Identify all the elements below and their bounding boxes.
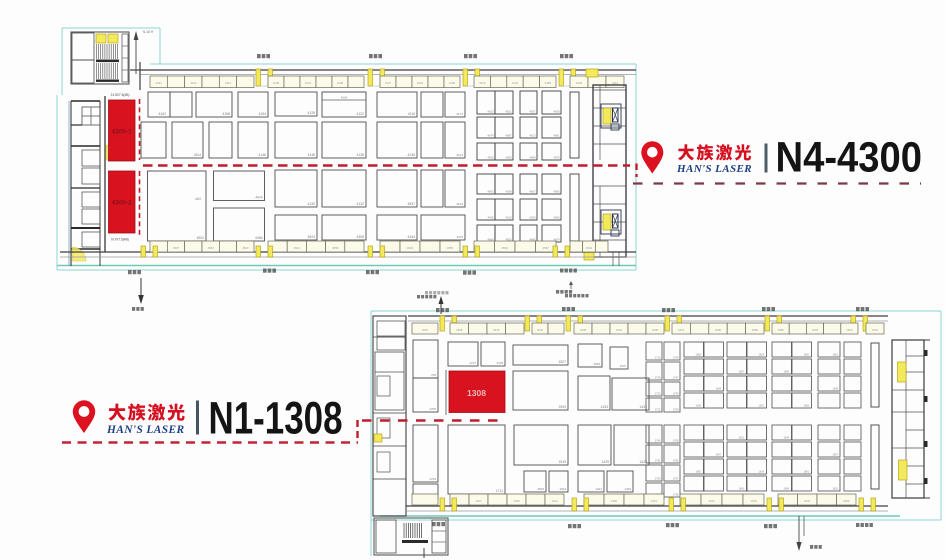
svg-text:4543: 4543 (586, 246, 593, 250)
svg-text:4191: 4191 (156, 81, 163, 85)
svg-text:1739: 1739 (673, 392, 679, 396)
svg-text:4121: 4121 (512, 81, 519, 85)
svg-text:4693: 4693 (506, 156, 512, 160)
svg-text:4521: 4521 (294, 246, 301, 250)
svg-text:1858: 1858 (803, 405, 809, 408)
svg-text:4514: 4514 (194, 153, 201, 157)
svg-text:4474: 4474 (255, 196, 262, 200)
svg-text:21.5X7.5(4B): 21.5X7.5(4B) (111, 93, 130, 97)
svg-text:1841: 1841 (738, 488, 744, 491)
svg-text:1838: 1838 (832, 388, 838, 391)
svg-text:4124: 4124 (190, 81, 197, 85)
svg-text:1433: 1433 (600, 405, 608, 409)
svg-text:1745: 1745 (655, 439, 661, 443)
svg-text:4123: 4123 (417, 81, 424, 85)
svg-text:4300-1: 4300-1 (112, 129, 132, 136)
svg-text:4555: 4555 (447, 246, 454, 250)
svg-text:4196: 4196 (449, 81, 456, 85)
svg-text:1757: 1757 (673, 477, 679, 481)
svg-text:1344: 1344 (708, 499, 715, 503)
svg-text:1382: 1382 (843, 499, 850, 503)
svg-text:1887: 1887 (738, 371, 744, 374)
svg-text:4639: 4639 (554, 110, 560, 114)
svg-text:4635: 4635 (488, 156, 494, 160)
svg-text:1527: 1527 (558, 360, 566, 364)
svg-text:1421: 1421 (595, 487, 602, 491)
svg-text:1539: 1539 (593, 362, 600, 366)
svg-text:N1-1308: N1-1308 (209, 392, 343, 443)
svg-text:4537: 4537 (173, 246, 180, 250)
svg-text:1758: 1758 (673, 408, 679, 412)
svg-text:1736: 1736 (673, 493, 679, 497)
svg-text:4138: 4138 (356, 153, 364, 157)
svg-text:1704: 1704 (429, 477, 436, 481)
svg-text:1690: 1690 (715, 328, 722, 332)
svg-text:4537: 4537 (407, 202, 415, 206)
svg-text:4502: 4502 (196, 236, 204, 240)
svg-text:4124: 4124 (341, 96, 348, 100)
svg-text:1519: 1519 (558, 460, 566, 464)
svg-text:4699: 4699 (530, 156, 536, 160)
svg-text:4638: 4638 (506, 190, 512, 194)
svg-text:1317: 1317 (475, 499, 482, 503)
svg-text:1618: 1618 (872, 328, 879, 332)
svg-text:4164: 4164 (576, 81, 583, 85)
svg-text:4434: 4434 (407, 235, 415, 239)
svg-text:4524: 4524 (307, 235, 315, 239)
svg-text:44G: 44G (195, 197, 202, 201)
svg-text:1625: 1625 (537, 328, 544, 332)
svg-text:1711: 1711 (496, 489, 503, 493)
svg-text:1725: 1725 (496, 361, 503, 365)
svg-text:4456: 4456 (255, 236, 263, 240)
svg-text:1503: 1503 (558, 405, 566, 409)
svg-text:4136: 4136 (407, 153, 415, 157)
svg-text:4158: 4158 (222, 112, 230, 116)
svg-text:1318: 1318 (750, 499, 757, 503)
svg-text:4522: 4522 (407, 246, 414, 250)
svg-text:4645: 4645 (488, 216, 494, 220)
svg-text:4663: 4663 (488, 190, 494, 194)
svg-text:1339: 1339 (513, 499, 520, 503)
svg-text:1575: 1575 (620, 364, 627, 368)
svg-text:1897: 1897 (715, 454, 721, 457)
svg-text:4674: 4674 (488, 134, 494, 138)
svg-text:1898: 1898 (783, 488, 789, 491)
svg-text:1425: 1425 (601, 460, 609, 464)
svg-text:4681: 4681 (554, 134, 560, 138)
svg-text:HAN'S LASER: HAN'S LASER (676, 163, 752, 175)
svg-text:1739: 1739 (655, 376, 661, 380)
svg-text:1689: 1689 (752, 328, 759, 332)
svg-text:4148: 4148 (307, 153, 315, 157)
svg-text:1513: 1513 (559, 487, 566, 491)
svg-text:1892: 1892 (695, 471, 701, 474)
svg-text:1656: 1656 (777, 328, 784, 332)
svg-text:4613: 4613 (488, 110, 494, 114)
svg-text:4685: 4685 (554, 190, 560, 194)
svg-text:4667: 4667 (530, 190, 536, 194)
svg-text:1869: 1869 (783, 371, 789, 374)
svg-text:1891: 1891 (803, 471, 809, 474)
svg-text:4162: 4162 (158, 112, 166, 116)
svg-text:1419: 1419 (624, 487, 631, 491)
svg-text:4179: 4179 (479, 81, 486, 85)
svg-text:1680: 1680 (652, 328, 659, 332)
svg-text:1891: 1891 (758, 405, 764, 408)
svg-text:4558: 4558 (332, 246, 339, 250)
svg-text:1756: 1756 (673, 459, 679, 463)
svg-text:1678: 1678 (493, 328, 500, 332)
svg-text:1830: 1830 (803, 354, 809, 357)
svg-text:1819: 1819 (758, 354, 764, 357)
svg-text:1668: 1668 (456, 328, 463, 332)
svg-text:4621: 4621 (506, 110, 512, 114)
svg-text:1791: 1791 (655, 459, 661, 463)
svg-text:1722: 1722 (655, 408, 661, 412)
svg-text:N-18 H': N-18 H' (143, 30, 154, 34)
svg-text:1620: 1620 (616, 328, 623, 332)
svg-text:4128: 4128 (307, 111, 315, 115)
svg-text:4143: 4143 (456, 202, 463, 206)
svg-text:4177: 4177 (456, 112, 463, 116)
svg-text:4687: 4687 (506, 134, 512, 138)
svg-text:1658: 1658 (580, 328, 587, 332)
svg-text:4699: 4699 (554, 216, 560, 220)
svg-text:1720: 1720 (655, 392, 661, 396)
svg-text:706: 706 (431, 373, 436, 377)
svg-text:1747: 1747 (673, 376, 679, 380)
svg-text:4587: 4587 (543, 246, 550, 250)
svg-text:4613: 4613 (530, 134, 536, 138)
svg-text:1881: 1881 (832, 354, 838, 357)
svg-text:1308: 1308 (467, 388, 486, 398)
svg-text:1851: 1851 (832, 488, 838, 491)
svg-text:N.7X7.5(4B): N.7X7.5(4B) (111, 238, 129, 242)
svg-text:4475: 4475 (456, 235, 463, 239)
svg-text:1844: 1844 (783, 437, 789, 440)
svg-text:4141: 4141 (305, 81, 312, 85)
svg-text:4523: 4523 (242, 246, 249, 250)
svg-text:1634: 1634 (846, 328, 853, 332)
svg-text:4553: 4553 (208, 246, 215, 250)
svg-text:1727: 1727 (469, 361, 476, 365)
svg-text:1899: 1899 (695, 405, 701, 408)
svg-text:4113: 4113 (225, 81, 231, 85)
svg-text:1768: 1768 (673, 439, 679, 443)
svg-text:4127: 4127 (385, 81, 392, 85)
svg-text:4554: 4554 (502, 246, 509, 250)
svg-text:4145: 4145 (273, 81, 280, 85)
svg-text:1314: 1314 (551, 499, 558, 503)
svg-text:1337: 1337 (804, 499, 811, 503)
svg-text:1715: 1715 (655, 356, 661, 360)
svg-text:1878: 1878 (758, 471, 764, 474)
svg-text:4679: 4679 (554, 156, 560, 160)
svg-text:1794: 1794 (673, 356, 679, 360)
svg-text:4130: 4130 (307, 202, 315, 206)
svg-text:4122: 4122 (356, 112, 364, 116)
svg-text:4154: 4154 (258, 112, 266, 116)
svg-text:N4-4300: N4-4300 (776, 133, 923, 181)
svg-text:HAN'S LASER: HAN'S LASER (106, 424, 185, 436)
svg-text:4138: 4138 (337, 81, 344, 85)
svg-text:1844: 1844 (715, 388, 721, 391)
svg-text:1515: 1515 (537, 487, 544, 491)
svg-text:4146: 4146 (258, 153, 266, 157)
svg-text:4185: 4185 (545, 81, 552, 85)
svg-text:4141: 4141 (456, 153, 463, 157)
svg-text:1730: 1730 (655, 477, 661, 481)
svg-text:4132: 4132 (356, 202, 364, 206)
svg-text:4116: 4116 (408, 112, 415, 116)
svg-text:1350: 1350 (611, 499, 618, 503)
svg-text:4498: 4498 (356, 235, 364, 239)
svg-text:1705: 1705 (429, 407, 436, 411)
svg-text:4637: 4637 (530, 110, 536, 114)
svg-text:1615: 1615 (422, 328, 429, 332)
svg-text:4610: 4610 (506, 216, 512, 220)
svg-text:1831: 1831 (738, 437, 744, 440)
svg-text:1683: 1683 (812, 328, 819, 332)
svg-text:4300-2: 4300-2 (112, 200, 132, 207)
svg-text:1895: 1895 (695, 354, 701, 357)
svg-text:1361: 1361 (651, 499, 658, 503)
svg-text:1647: 1647 (678, 328, 685, 332)
svg-text:4630: 4630 (530, 216, 536, 220)
svg-text:1897: 1897 (832, 454, 838, 457)
